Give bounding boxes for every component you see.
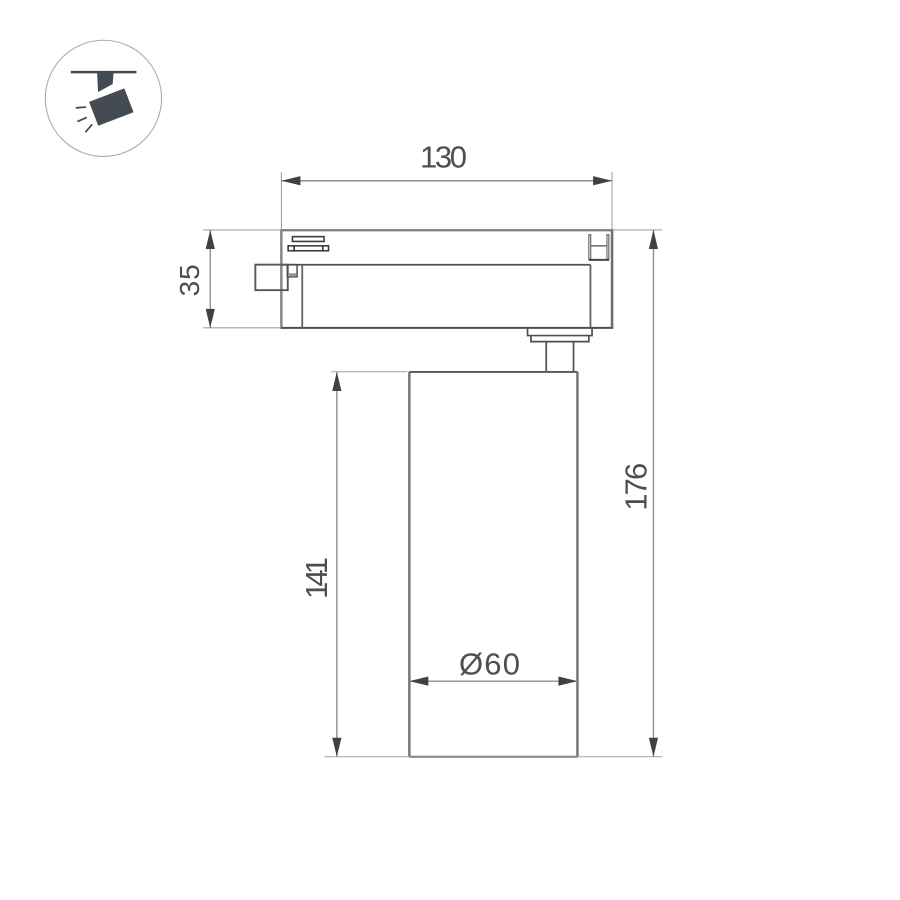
svg-text:141: 141 bbox=[299, 557, 334, 599]
svg-text:35: 35 bbox=[174, 264, 205, 296]
svg-text:Ø60: Ø60 bbox=[459, 647, 520, 682]
svg-text:176: 176 bbox=[618, 463, 653, 511]
svg-text:130: 130 bbox=[420, 140, 467, 175]
